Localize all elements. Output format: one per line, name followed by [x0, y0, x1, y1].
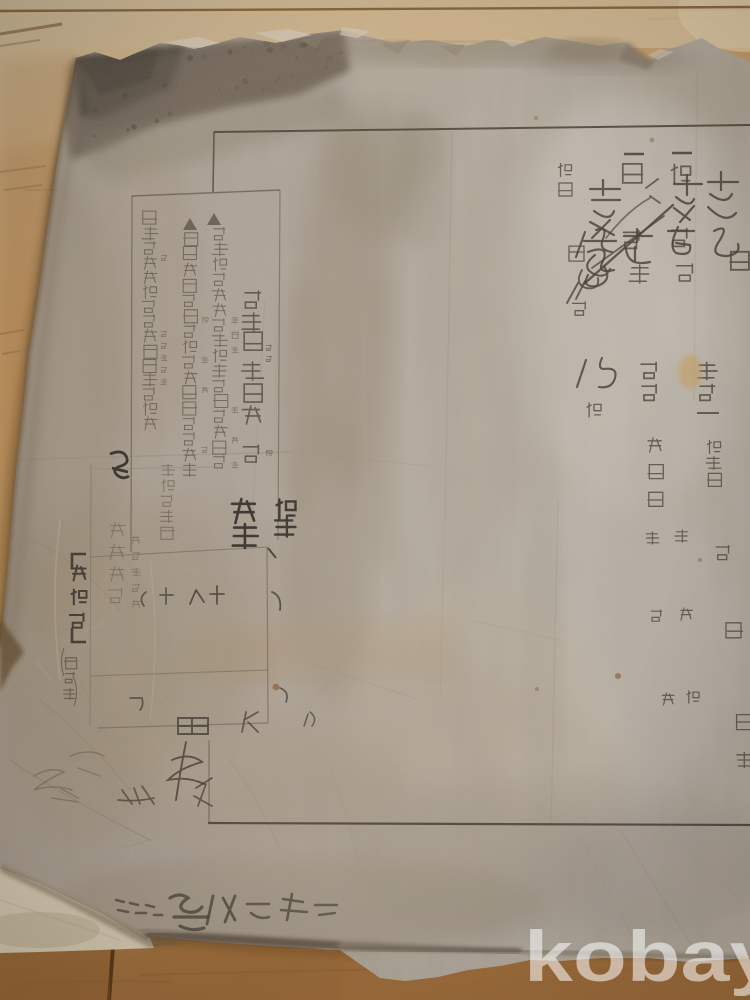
svg-text:kobay: kobay: [524, 917, 750, 996]
